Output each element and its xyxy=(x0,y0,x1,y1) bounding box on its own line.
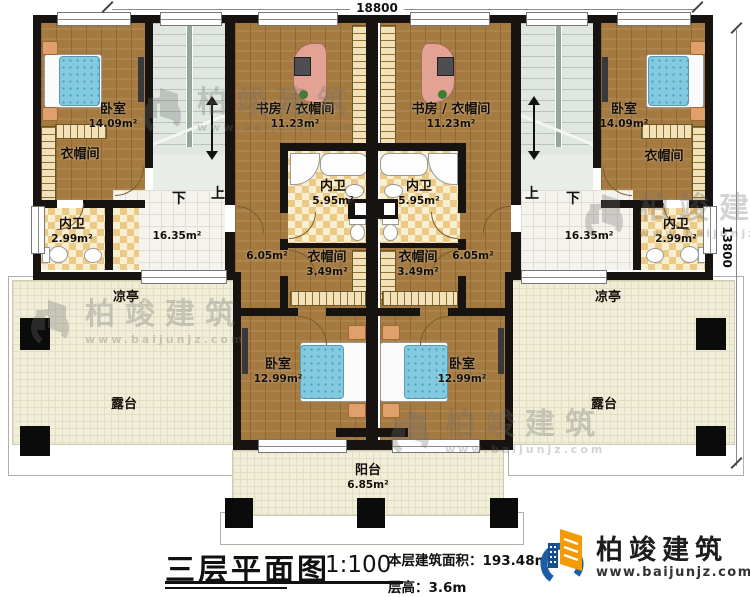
wall xyxy=(366,147,378,248)
wall xyxy=(458,276,466,308)
wardrobe-hatch xyxy=(41,126,56,202)
dimension-line-top xyxy=(112,9,350,10)
toilet-bowl xyxy=(383,224,398,241)
computer-monitor xyxy=(437,57,454,76)
drawing-scale: 1:100 xyxy=(325,552,391,578)
wall xyxy=(511,23,521,205)
wardrobe-hatch xyxy=(382,291,458,306)
title-underline xyxy=(165,587,287,589)
wall xyxy=(233,440,258,450)
tv-cabinet xyxy=(498,328,504,374)
sink xyxy=(84,248,102,263)
wall xyxy=(83,200,145,208)
wall xyxy=(33,272,141,280)
terrace-right-floor xyxy=(511,280,735,445)
wall xyxy=(345,440,392,450)
area-label-hall-right: 16.35m² xyxy=(565,230,614,242)
bathtub xyxy=(380,153,428,176)
window xyxy=(617,12,691,26)
floor-area-info: 本层建筑面积：193.48m² xyxy=(388,549,555,569)
wall xyxy=(326,308,368,316)
stair-arrow-down xyxy=(206,151,218,160)
wall xyxy=(478,440,513,450)
dimension-top-value: 18800 xyxy=(356,1,398,15)
brand-logo: 柏竣建筑 www.baijunjz.com xyxy=(540,527,750,589)
washbasin xyxy=(355,203,366,215)
wall xyxy=(601,200,663,208)
room-label-cloakroom-top-left: 衣帽间 xyxy=(60,148,99,163)
dimension-right-value: 13800 xyxy=(720,226,734,268)
room-label-bath-center-right: 内卫 5.95m² xyxy=(398,180,439,207)
wall xyxy=(225,23,235,205)
nightstand xyxy=(690,107,706,121)
room-label-study-right: 书房 / 衣帽间 11.23m² xyxy=(412,103,491,130)
wall xyxy=(282,243,366,248)
brand-website: www.baijunjz.com xyxy=(596,565,750,580)
bath-top-left-vestibule xyxy=(113,208,139,270)
stair-arrow-down xyxy=(528,151,540,160)
bed-blanket xyxy=(59,56,100,106)
floor-plan: 卧室 14.09m² 衣帽间 内卫 2.99m² 书房 / 衣帽间 11.23m… xyxy=(0,0,750,597)
wall xyxy=(366,308,378,440)
nightstand xyxy=(348,325,366,340)
wall xyxy=(511,232,521,272)
sink xyxy=(646,248,664,263)
title-underline xyxy=(165,581,403,584)
stair-arrow-up xyxy=(206,96,218,105)
wall xyxy=(448,308,511,316)
column xyxy=(696,426,726,456)
wall xyxy=(33,15,713,23)
wall xyxy=(366,23,378,147)
stair-label-down-right: 下 xyxy=(566,188,580,208)
wall xyxy=(225,232,235,272)
bed-blanket xyxy=(648,56,689,106)
window xyxy=(703,206,717,254)
area-label-corridor-right: 6.05m² xyxy=(452,250,493,262)
room-label-bath-top-left: 内卫 2.99m² xyxy=(51,218,92,245)
window xyxy=(410,12,490,26)
washbasin xyxy=(384,203,395,215)
room-label-pavilion-right: 凉亭 xyxy=(595,291,621,306)
wall xyxy=(366,248,378,308)
room-label-balcony: 阳台 6.85m² xyxy=(347,464,388,491)
stair-arrow xyxy=(533,103,535,153)
floor-height-value: 3.6m xyxy=(429,580,467,596)
wall xyxy=(458,151,466,213)
column xyxy=(225,498,253,528)
floor-area-label: 本层建筑面积： xyxy=(388,553,483,569)
nightstand xyxy=(42,41,58,55)
room-label-study-left: 书房 / 衣帽间 11.23m² xyxy=(256,103,335,130)
computer-monitor xyxy=(294,57,311,76)
area-label-hall-left: 16.35m² xyxy=(153,230,202,242)
wall xyxy=(145,23,153,168)
room-label-cloakroom-center-right: 衣帽间 3.49m² xyxy=(397,251,438,278)
nightstand xyxy=(42,107,58,121)
nightstand xyxy=(382,403,400,418)
floor-height-info: 层高：3.6m xyxy=(388,576,466,596)
stair-label-down-left: 下 xyxy=(172,188,186,208)
wall xyxy=(378,308,420,316)
wall xyxy=(280,276,288,308)
room-label-terrace-right: 露台 xyxy=(591,398,617,413)
sliding-door xyxy=(521,270,607,284)
nightstand xyxy=(348,403,366,418)
stair-arrow xyxy=(211,103,213,153)
wall xyxy=(336,428,408,437)
nightstand xyxy=(690,41,706,55)
column xyxy=(490,498,518,528)
stair-arrow-up xyxy=(528,96,540,105)
wall xyxy=(233,272,241,450)
window xyxy=(57,12,131,26)
toilet-bowl xyxy=(680,246,699,263)
brand-name: 柏竣建筑 xyxy=(596,536,750,566)
sliding-door xyxy=(141,270,227,284)
brand-logo-icon xyxy=(540,527,588,589)
wall xyxy=(280,151,288,213)
sliding-door xyxy=(258,439,347,453)
dimension-line-right xyxy=(736,30,737,466)
area-label-corridor-left: 6.05m² xyxy=(246,250,287,262)
room-label-cloakroom-center-left: 衣帽间 3.49m² xyxy=(306,251,347,278)
column xyxy=(20,426,50,456)
stair-label-up-right: 上 xyxy=(525,183,539,203)
window xyxy=(31,206,45,254)
plant xyxy=(438,90,447,99)
bed-blanket xyxy=(300,345,344,399)
window xyxy=(160,12,222,26)
room-label-cloakroom-top-right: 衣帽间 xyxy=(644,150,683,165)
room-label-bedroom-bottom-right: 卧室 12.99m² xyxy=(438,358,487,385)
bathtub xyxy=(320,153,368,176)
tv-cabinet xyxy=(138,57,144,102)
room-label-terrace-left: 露台 xyxy=(111,398,137,413)
room-label-bedroom-top-left: 卧室 14.09m² xyxy=(89,103,138,130)
wall xyxy=(105,200,113,270)
wall xyxy=(633,200,641,270)
dimension-line-top xyxy=(404,9,696,10)
wardrobe-hatch xyxy=(380,25,396,145)
stair-label-up-left: 上 xyxy=(211,183,225,203)
wall xyxy=(505,272,513,450)
tv-cabinet xyxy=(602,57,608,102)
room-label-bath-center-left: 内卫 5.95m² xyxy=(312,180,353,207)
wall xyxy=(605,272,713,280)
sliding-door xyxy=(392,439,480,453)
toilet-bowl xyxy=(49,246,68,263)
nightstand xyxy=(382,325,400,340)
toilet-bowl xyxy=(350,224,365,241)
wall xyxy=(593,23,601,168)
room-label-pavilion-left: 凉亭 xyxy=(113,291,139,306)
window xyxy=(526,12,588,26)
wardrobe-hatch xyxy=(290,291,366,306)
column xyxy=(20,318,50,350)
floor-height-label: 层高： xyxy=(388,580,429,596)
room-label-bedroom-top-right: 卧室 14.09m² xyxy=(600,103,649,130)
column xyxy=(357,498,385,528)
wardrobe-hatch xyxy=(641,124,693,139)
window xyxy=(258,12,338,26)
dimension-tick xyxy=(691,1,703,13)
wall xyxy=(235,308,298,316)
plant xyxy=(299,90,308,99)
wall xyxy=(380,243,464,248)
room-label-bedroom-bottom-left: 卧室 12.99m² xyxy=(254,358,303,385)
room-label-bath-top-right: 内卫 2.99m² xyxy=(655,218,696,245)
column xyxy=(696,318,726,350)
tv-cabinet xyxy=(242,328,248,374)
